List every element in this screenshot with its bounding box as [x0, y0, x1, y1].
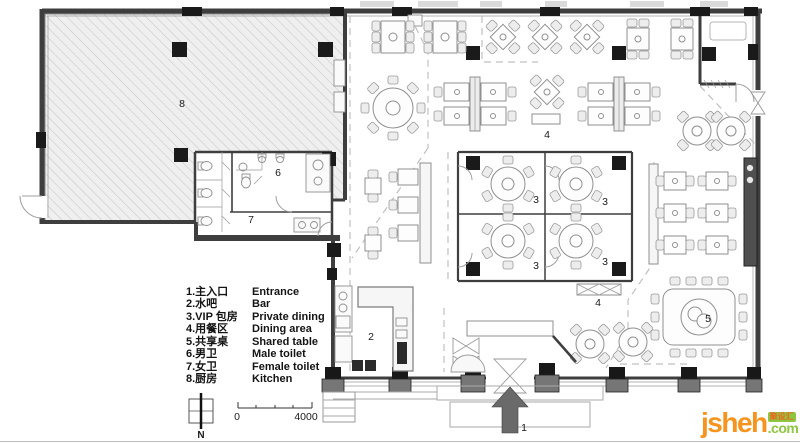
label-vip-4: 3 — [602, 256, 608, 268]
label-dining-upper: 4 — [544, 129, 550, 141]
legend-row-kitchen: 8.厨房Kitchen — [186, 373, 325, 385]
right-dining — [649, 158, 757, 266]
legend-cn: 7.女卫 — [186, 361, 252, 373]
label-male-toilet: 6 — [275, 167, 281, 179]
legend-en: Entrance — [252, 286, 299, 298]
label-female-toilet: 7 — [248, 214, 254, 226]
legend-row-female-toilet: 7.女卫Female toilet — [186, 361, 325, 373]
scale-start: 0 — [234, 411, 240, 423]
legend-en: Kitchen — [252, 373, 292, 385]
dining-furniture-upper — [361, 9, 752, 152]
floor-plan-drawing: 8 6 7 2 3 3 3 3 4 4 5 1 N 0 4000 — [0, 0, 800, 443]
exterior-marks — [360, 1, 728, 7]
label-kitchen: 8 — [179, 98, 185, 110]
bottom-divider — [0, 441, 800, 442]
sideboard — [577, 284, 621, 295]
watermark-logo: jsheh 聚设汇 .com — [701, 408, 798, 438]
legend-row-bar: 2.水吧Bar — [186, 298, 325, 310]
legend-row-dining-area: 4.用餐区Dining area — [186, 323, 325, 335]
legend-cn: 2.水吧 — [186, 298, 252, 310]
legend-cn: 5.共享桌 — [186, 336, 252, 348]
label-vip-3: 3 — [533, 260, 539, 272]
watermark-tld: .com — [768, 422, 799, 435]
scale-end: 4000 — [294, 411, 318, 423]
label-bar: 2 — [368, 331, 374, 343]
legend-cn: 8.厨房 — [186, 373, 252, 385]
legend-en: Dining area — [252, 323, 312, 335]
legend-en: Male toilet — [252, 348, 306, 360]
bar-counter — [335, 286, 413, 371]
compass: N — [189, 393, 213, 441]
legend-row-private-dining: 3.VIP 包房Private dining — [186, 311, 325, 323]
toilet-block — [196, 152, 332, 236]
legend: 1.主入口Entrance 2.水吧Bar 3.VIP 包房Private di… — [186, 286, 325, 386]
scale-bar: 0 4000 — [234, 402, 318, 423]
label-vip-2: 3 — [602, 196, 608, 208]
legend-cn: 3.VIP 包房 — [186, 311, 252, 323]
label-shared-table: 5 — [705, 313, 711, 325]
legend-cn: 6.男卫 — [186, 348, 252, 360]
legend-en: Shared table — [252, 336, 318, 348]
legend-row-shared-table: 5.共享桌Shared table — [186, 336, 325, 348]
legend-row-entrance: 1.主入口Entrance — [186, 286, 325, 298]
legend-cn: 1.主入口 — [186, 286, 252, 298]
legend-cn: 4.用餐区 — [186, 323, 252, 335]
watermark-name: jsheh — [701, 408, 767, 438]
compass-north-label: N — [197, 430, 204, 441]
legend-row-male-toilet: 6.男卫Male toilet — [186, 348, 325, 360]
label-entrance: 1 — [521, 422, 527, 434]
shared-table — [651, 277, 747, 357]
legend-en: Bar — [252, 298, 270, 310]
label-vip-1: 3 — [533, 194, 539, 206]
label-dining-lower: 4 — [595, 297, 601, 309]
corridor-tables — [365, 163, 431, 263]
legend-en: Private dining — [252, 311, 325, 323]
legend-en: Female toilet — [252, 361, 319, 373]
watermark-right: 聚设汇 .com — [768, 412, 799, 435]
floor-plan-page: 8 6 7 2 3 3 3 3 4 4 5 1 N 0 4000 1.主入口En… — [0, 0, 800, 443]
